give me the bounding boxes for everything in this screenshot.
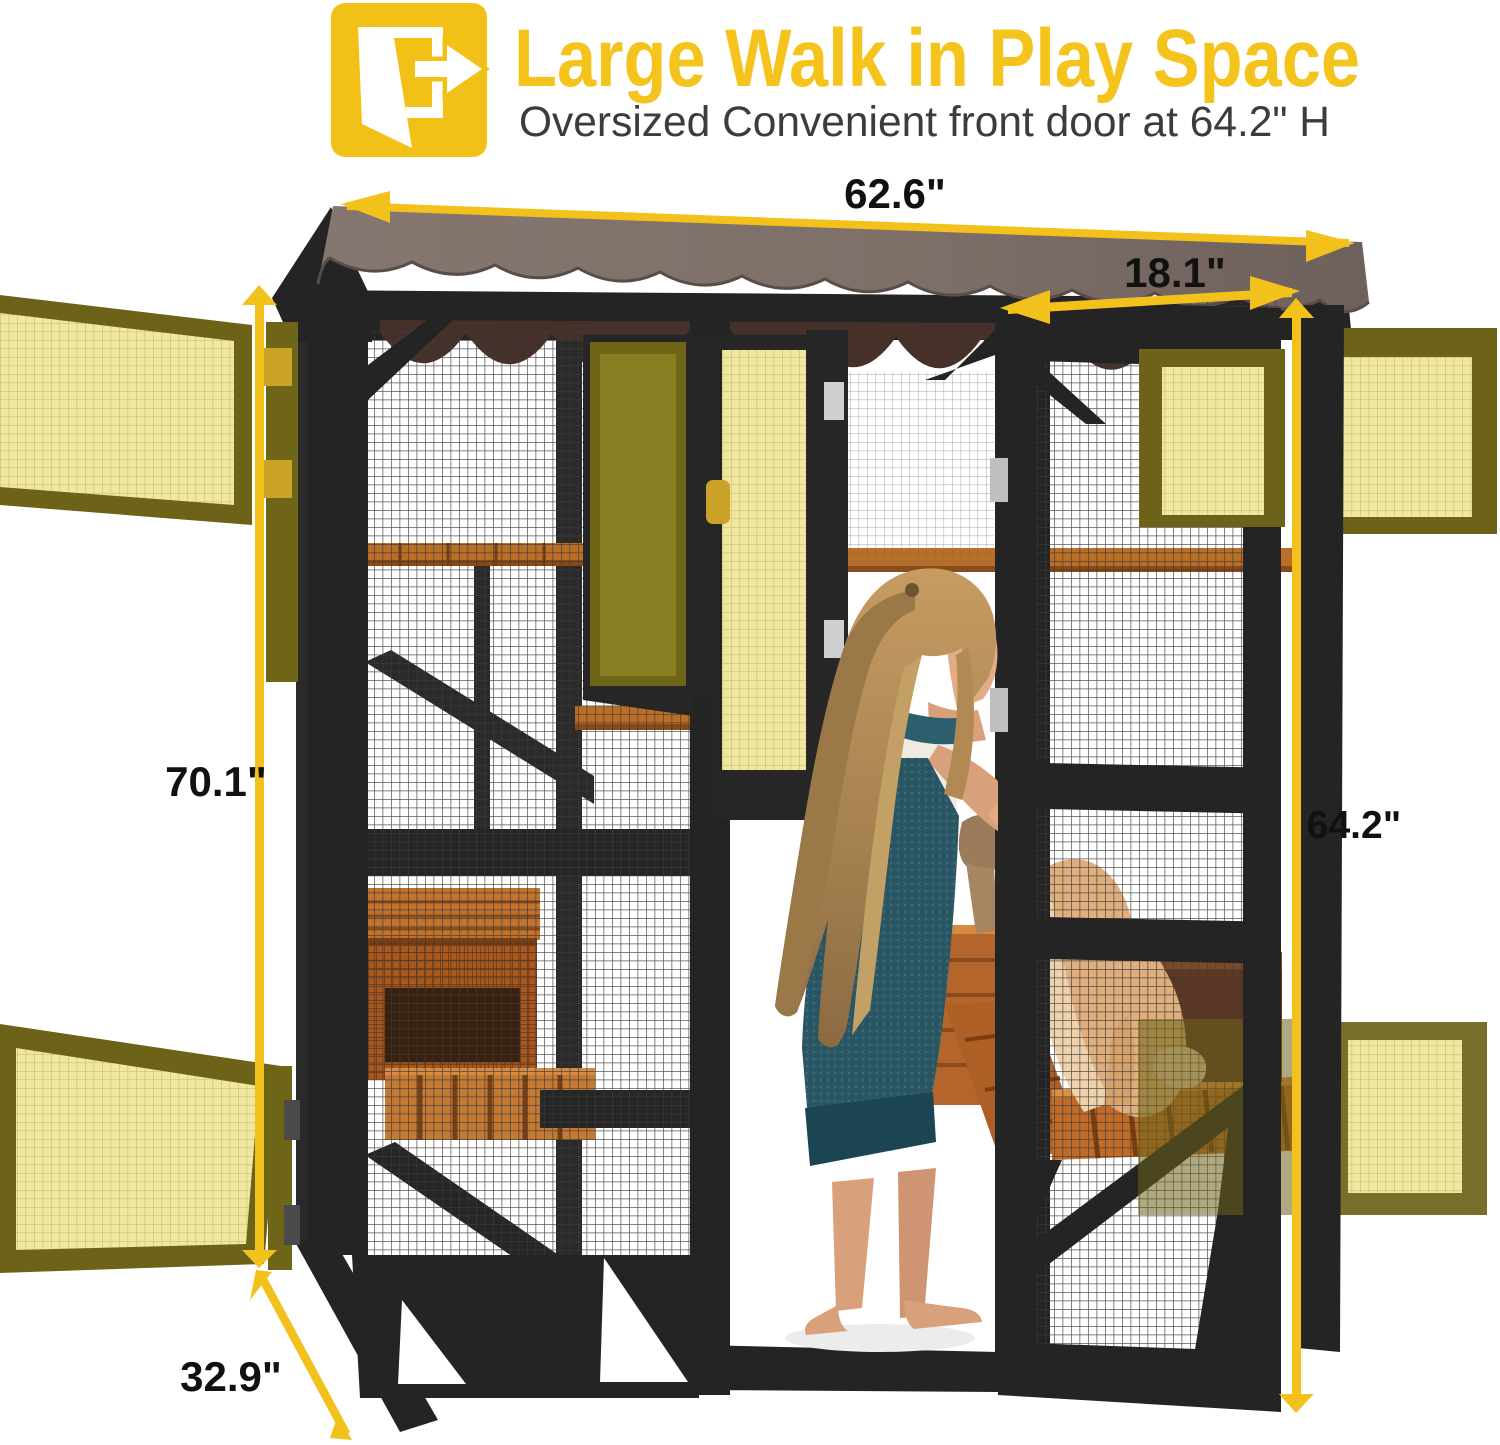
svg-text:62.6": 62.6" [844, 170, 946, 217]
svg-text:Large Walk in Play Space: Large Walk in Play Space [514, 13, 1360, 104]
svg-text:64.2": 64.2" [1307, 804, 1401, 847]
svg-text:Oversized Convenient front doo: Oversized Convenient front door at 64.2"… [519, 98, 1330, 146]
svg-text:32.9": 32.9" [180, 1353, 282, 1400]
svg-text:18.1": 18.1" [1124, 249, 1226, 296]
svg-text:70.1": 70.1" [165, 758, 267, 805]
